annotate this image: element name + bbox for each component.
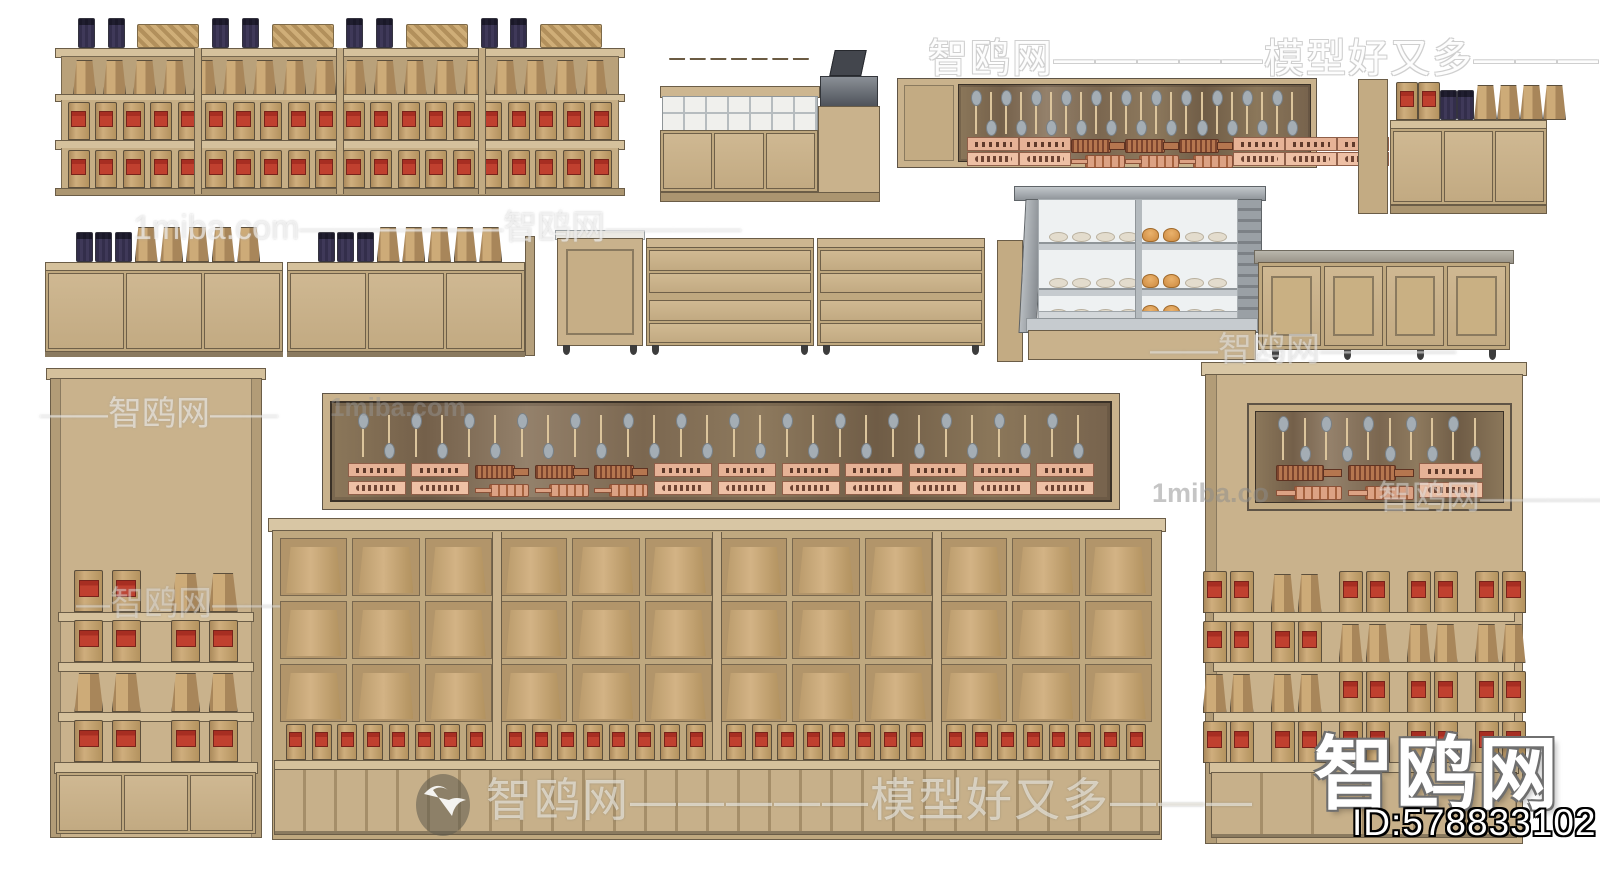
bun-orange	[1142, 228, 1159, 242]
comp	[940, 601, 1007, 659]
item-bag-red	[123, 150, 145, 188]
counter-base	[45, 352, 283, 357]
item-jar	[357, 232, 374, 262]
item-bag-kraft	[1434, 624, 1458, 663]
blank-panel	[904, 85, 954, 161]
item-bag-kraft	[1407, 624, 1431, 663]
spoon-up	[1212, 90, 1223, 136]
tool-row	[1270, 484, 1489, 498]
plaque-diamonds	[411, 481, 469, 495]
tool-brush	[475, 465, 529, 477]
item-bag-kraft	[554, 60, 577, 95]
compartment-bay	[940, 538, 1152, 722]
item-cup	[709, 58, 728, 86]
spoon-down	[1470, 416, 1481, 462]
tool-row	[967, 138, 1302, 151]
item-bag-kraft	[171, 673, 200, 712]
spoon-up	[517, 413, 528, 459]
item-bag-red	[425, 102, 447, 140]
comp	[425, 664, 492, 722]
comp	[792, 601, 859, 659]
spoon-down	[808, 413, 819, 459]
item-bag-red	[1366, 571, 1390, 613]
door	[714, 133, 763, 189]
item-bag-red	[95, 150, 117, 188]
item-bag-red	[752, 724, 772, 760]
item-bag-red	[557, 724, 577, 760]
drawer-counter-right	[817, 238, 985, 356]
item-bag-red	[508, 150, 530, 188]
bag-shelf-row	[1219, 723, 1509, 763]
item-bag-red	[205, 150, 227, 188]
spoon-down	[437, 413, 448, 459]
shelf-board	[58, 662, 254, 672]
shelf-board	[1213, 612, 1515, 622]
bun-pale	[1185, 232, 1204, 242]
spoon-up	[994, 413, 1005, 459]
item-bag-red	[506, 724, 526, 760]
item-bag-kraft	[186, 227, 209, 262]
bun-pale	[1049, 232, 1068, 242]
spoon-up	[464, 413, 475, 459]
comp	[940, 538, 1007, 596]
item-bag-kraft	[454, 227, 477, 262]
plaque-dots	[845, 463, 903, 477]
item-bag-red	[209, 720, 238, 762]
item-jar	[115, 232, 132, 262]
item-bag-red	[829, 724, 849, 760]
comp	[1012, 601, 1079, 659]
item-bag-kraft	[1475, 624, 1499, 663]
item-bag-red	[535, 150, 557, 188]
item-bag-red	[590, 150, 612, 188]
pos-cabinet	[818, 106, 880, 194]
tool-brush	[1179, 139, 1233, 151]
item-bag-red	[363, 724, 383, 760]
item-bag-red	[972, 724, 992, 760]
item-basket	[406, 24, 468, 48]
plaque-dots	[718, 463, 776, 477]
spoon-up	[782, 413, 793, 459]
door-paneled	[1324, 266, 1383, 346]
item-bag-red	[1418, 82, 1440, 120]
plank-base	[1211, 772, 1517, 838]
caster-wheel	[563, 345, 570, 355]
spoon-up	[1121, 90, 1132, 136]
comp	[940, 664, 1007, 722]
door	[1444, 131, 1493, 202]
item-bag-red	[1271, 721, 1295, 763]
item-bag-red	[286, 724, 306, 760]
spoon-down	[1166, 90, 1177, 136]
plaque-diamonds	[1233, 152, 1285, 166]
comp	[572, 664, 639, 722]
item-bag-red	[726, 724, 746, 760]
case-base	[1028, 330, 1256, 360]
bun-pale	[1049, 278, 1068, 288]
ledge-bag-row	[280, 724, 492, 760]
plaque-diamonds	[654, 481, 712, 495]
item-cup	[688, 58, 707, 86]
item-bag-red	[112, 620, 141, 662]
comp	[720, 538, 787, 596]
framed-utensil-panel	[1247, 403, 1512, 511]
comp	[280, 664, 347, 722]
door	[124, 775, 187, 831]
item-bag-red	[440, 724, 460, 760]
tool-row	[967, 153, 1302, 166]
item-bag-red	[1396, 82, 1418, 120]
item-bag-kraft	[112, 673, 141, 712]
item-bag-red	[398, 150, 420, 188]
item-bag-red	[1475, 671, 1499, 713]
item-jar	[337, 232, 354, 262]
bun-orange	[1163, 274, 1180, 288]
spoon-up	[1061, 90, 1072, 136]
caster-wheel	[972, 345, 979, 355]
bread-display-case	[1022, 184, 1262, 358]
door-paneled	[1262, 266, 1321, 346]
jar-basket-row	[65, 18, 615, 48]
plaque-dots	[1285, 137, 1337, 151]
item-bag-red	[1023, 724, 1043, 760]
door	[368, 273, 444, 349]
dark-wood-panel	[958, 84, 1311, 162]
spoon-up	[623, 413, 634, 459]
item-bag-red	[1203, 721, 1227, 763]
item-bag-red	[209, 620, 238, 662]
item-bag-red	[150, 102, 172, 140]
bay-post	[336, 48, 344, 194]
door-paneled	[1447, 266, 1506, 346]
comp	[720, 664, 787, 722]
item-bag-red	[150, 150, 172, 188]
bag-shelf-row	[66, 622, 246, 662]
item-bag-red	[398, 102, 420, 140]
door	[766, 133, 815, 189]
plaque-dots	[1233, 137, 1285, 151]
plaque-dots	[967, 137, 1019, 151]
plaque-dots	[348, 463, 406, 477]
tool-brush	[1125, 139, 1179, 151]
item-jar	[78, 18, 95, 48]
spoon-down	[861, 413, 872, 459]
item-bag-red	[1339, 671, 1363, 713]
spoon-up	[1031, 90, 1042, 136]
tool-paddle	[1276, 486, 1342, 498]
item-bag-red	[1407, 571, 1431, 613]
base-doors	[56, 772, 256, 834]
item-bag-kraft	[402, 227, 425, 262]
caster-wheel	[801, 345, 808, 355]
item-bag-kraft	[103, 60, 126, 95]
item-bag-red	[777, 724, 797, 760]
item-bag-kraft	[253, 60, 276, 95]
item-jar	[1457, 90, 1474, 120]
comp	[425, 538, 492, 596]
item-bag-kraft	[1474, 85, 1497, 120]
counter-base	[287, 352, 525, 357]
paneled-counter	[1258, 250, 1510, 362]
item-bag-red	[1230, 721, 1254, 763]
bag-shelf-row	[1219, 573, 1509, 613]
tall-cabinet-left	[50, 362, 262, 838]
spoon-down	[1300, 416, 1311, 462]
spoon-down	[490, 413, 501, 459]
item-bag-kraft	[160, 227, 183, 262]
spoon-up	[1181, 90, 1192, 136]
item-bag-red	[74, 620, 103, 662]
bay-post	[194, 48, 202, 194]
comp	[425, 601, 492, 659]
item-bag-red	[563, 150, 585, 188]
cabinet-side-panel	[1358, 79, 1388, 214]
spoon-up	[358, 413, 369, 459]
tool-paddle	[1071, 155, 1125, 166]
spoon-up	[1321, 416, 1332, 462]
item-bag-kraft	[524, 60, 547, 95]
caster-wheel	[630, 345, 637, 355]
item-jar	[346, 18, 363, 48]
item-bag-kraft	[163, 60, 186, 95]
item-bag-red	[1100, 724, 1120, 760]
caster-wheel	[1417, 350, 1424, 360]
spoon-up	[835, 413, 846, 459]
spoon-row	[967, 88, 1302, 136]
casters	[652, 345, 808, 356]
plank-base	[274, 769, 1160, 835]
spoon-down	[1016, 90, 1027, 136]
bag-shelf-row	[66, 572, 246, 612]
plaque-dots	[909, 463, 967, 477]
spoon-down	[1020, 413, 1031, 459]
bag-shelf-row	[1219, 623, 1509, 663]
plaque-diamonds	[845, 481, 903, 495]
comp	[645, 664, 712, 722]
drawer	[649, 250, 811, 271]
comp	[1012, 538, 1079, 596]
comp	[500, 538, 567, 596]
plaque-dots	[411, 463, 469, 477]
spoon-down	[1073, 413, 1084, 459]
item-bag-red	[535, 102, 557, 140]
spoon-row	[342, 409, 1100, 459]
item-bag-red	[68, 102, 90, 140]
spoon-up	[1448, 416, 1459, 462]
spoon-down	[1136, 90, 1147, 136]
item-bag-red	[312, 724, 332, 760]
drawer	[820, 250, 982, 271]
plaque-dots	[1036, 463, 1094, 477]
item-jar	[212, 18, 229, 48]
tool-paddle	[1125, 155, 1179, 166]
item-bag-red	[370, 150, 392, 188]
spoon-row	[1268, 416, 1491, 462]
drawer	[820, 273, 982, 294]
cup-row	[666, 58, 812, 86]
tool-paddle	[1179, 155, 1233, 166]
spoon-down	[1076, 90, 1087, 136]
item-bag-red	[590, 102, 612, 140]
spoon-up	[1406, 416, 1417, 462]
comp	[865, 538, 932, 596]
spoon-down	[1342, 416, 1353, 462]
item-bag-kraft	[209, 573, 238, 612]
item-bag-red	[260, 102, 282, 140]
item-bag-red	[660, 724, 680, 760]
drawer-stack	[817, 247, 985, 346]
item-bag-red	[508, 102, 530, 140]
item-cup	[730, 58, 749, 86]
tall-cabinet-right	[1205, 362, 1523, 844]
drawer-counter-left	[646, 238, 814, 356]
item-bag-kraft	[1497, 85, 1520, 120]
item-bag-red	[68, 150, 90, 188]
item-bag-kraft	[171, 573, 200, 612]
item-bag-red	[1075, 724, 1095, 760]
door	[190, 775, 253, 831]
item-jar	[481, 18, 498, 48]
item-bag-red	[1502, 721, 1526, 763]
drawer	[820, 300, 982, 321]
comp	[500, 601, 567, 659]
item-cup	[668, 58, 687, 86]
item-bag-red	[343, 102, 365, 140]
spoon-down	[967, 413, 978, 459]
comp	[865, 664, 932, 722]
plaque-dots	[1419, 463, 1483, 479]
item-bag-red	[315, 150, 337, 188]
item-bag-red	[906, 724, 926, 760]
low-counter-right	[287, 228, 525, 357]
glass-mullion	[1135, 200, 1142, 319]
paneled-cabinet-body	[557, 238, 643, 346]
item-jar	[108, 18, 125, 48]
item-bag-kraft	[223, 60, 246, 95]
bun-pale	[1096, 232, 1115, 242]
plaque-diamonds	[348, 481, 406, 495]
drawer-stack	[646, 247, 814, 346]
item-cup	[750, 58, 769, 86]
compartment-bay	[280, 538, 492, 722]
tool-brush	[594, 465, 648, 477]
item-bag-red	[880, 724, 900, 760]
comp	[572, 601, 639, 659]
plaque-dots	[782, 463, 840, 477]
drawer	[649, 300, 811, 321]
item-bag-red	[1434, 721, 1458, 763]
item-bag-kraft	[135, 227, 158, 262]
spoon-down	[649, 413, 660, 459]
item-jar	[376, 18, 393, 48]
item-bag-red	[288, 150, 310, 188]
casters	[1272, 350, 1496, 362]
door	[48, 273, 124, 349]
item-bag-red	[803, 724, 823, 760]
door	[290, 273, 366, 349]
item-bag-kraft	[1271, 574, 1295, 613]
caster-wheel	[1489, 350, 1496, 360]
item-bag-red	[946, 724, 966, 760]
tool-brush	[1276, 465, 1342, 479]
spoon-up	[1047, 413, 1058, 459]
item-bag-red	[315, 102, 337, 140]
spoon-up	[411, 413, 422, 459]
cabinet-base	[1390, 205, 1547, 214]
item-bag-red	[466, 724, 486, 760]
item-bag-red	[1407, 721, 1431, 763]
spoon-up	[1001, 90, 1012, 136]
item-bag-red	[1407, 671, 1431, 713]
compartment-bay	[720, 538, 932, 722]
spoon-down	[1257, 90, 1268, 136]
item-jar	[318, 232, 335, 262]
item-bag-red	[1271, 621, 1295, 663]
plaque-diamonds	[782, 481, 840, 495]
jar-bag-row	[73, 228, 263, 262]
item-bag-red	[171, 720, 200, 762]
door-paneled	[1386, 266, 1445, 346]
spoon-down	[1287, 90, 1298, 136]
bag-jar-row	[1396, 85, 1541, 120]
spoon-down	[543, 413, 554, 459]
shelf-board	[1213, 712, 1515, 722]
comp	[792, 538, 859, 596]
plaque-diamonds	[973, 481, 1031, 495]
caster-wheel	[1272, 350, 1279, 360]
item-bag-red	[425, 150, 447, 188]
comp	[1012, 664, 1079, 722]
item-basket	[137, 24, 199, 48]
item-bag-red	[260, 150, 282, 188]
door	[1393, 131, 1442, 202]
spoon-down	[702, 413, 713, 459]
dark-wood-panel	[330, 401, 1112, 502]
spoon-down	[986, 90, 997, 136]
item-bag-red	[583, 724, 603, 760]
plaque-diamonds	[718, 481, 776, 495]
spoon-up	[971, 90, 982, 136]
item-bag-red	[370, 102, 392, 140]
item-bag-red	[1502, 671, 1526, 713]
spoon-down	[1197, 90, 1208, 136]
pos-monitor	[829, 50, 867, 76]
item-bag-red	[95, 102, 117, 140]
pos-printer	[820, 76, 878, 108]
tool-paddle	[475, 484, 529, 495]
spoon-down	[1227, 90, 1238, 136]
item-bag-red	[1366, 671, 1390, 713]
item-basket	[540, 24, 602, 48]
cabinet-side-panel	[997, 240, 1023, 362]
item-bag-red	[635, 724, 655, 760]
item-bag-red	[1298, 721, 1322, 763]
comp	[1085, 538, 1152, 596]
spoon-up	[676, 413, 687, 459]
item-bag-red	[337, 724, 357, 760]
item-bag-kraft	[283, 60, 306, 95]
shelf-board	[1213, 662, 1515, 672]
item-bag-red	[171, 620, 200, 662]
counter-base	[660, 192, 880, 202]
door	[446, 273, 522, 349]
item-bag-red	[74, 720, 103, 762]
counter-doors	[287, 270, 525, 352]
bag-shelf-row	[1219, 673, 1509, 713]
item-bag-red	[343, 150, 365, 188]
item-bag-red	[453, 102, 475, 140]
item-bag-red	[205, 102, 227, 140]
